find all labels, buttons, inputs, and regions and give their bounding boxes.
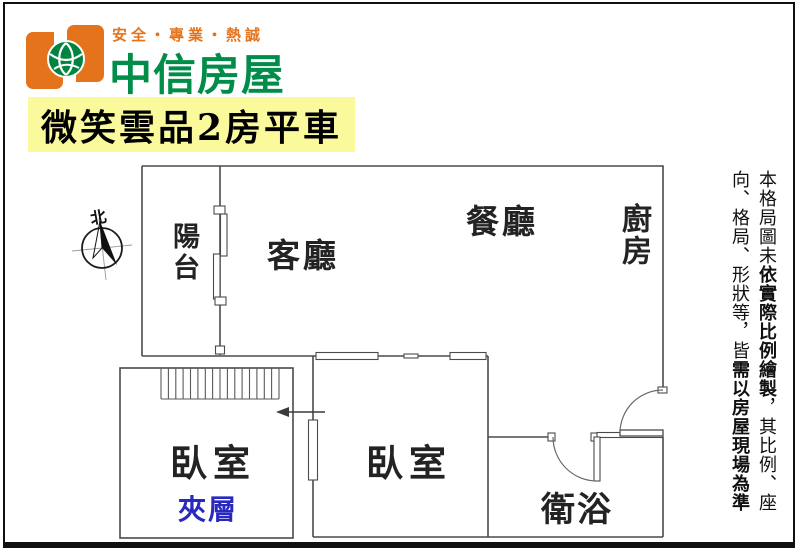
room-label-bedroom-left: 臥室 [170,433,256,487]
room-label-mezzanine: 夾層 [178,488,238,528]
room-label-kitchen: 廚房 [611,203,655,267]
disclaimer-column-2: 向、格局、形狀等，皆需以房屋現場為準 [726,170,753,515]
room-label-living-room: 客廳 [267,229,339,277]
stairs-icon [161,368,279,399]
room-label-balcony: 陽台 [165,222,204,284]
disclaimer-text: 本格局圖未依實際比例繪製，其比例、座 向、格局、形狀等，皆需以房屋現場為準 [718,170,780,515]
room-label-bathroom: 衛浴 [541,482,613,531]
room-label-bedroom-middle: 臥室 [366,433,452,487]
room-label-dining-room: 餐廳 [466,195,538,243]
floor-plan-page: 安全・專業・熱誠 中信房屋 微笑雲品2房平車 [0,0,800,553]
arrow-left-icon [276,407,325,417]
disclaimer-column-1: 本格局圖未依實際比例繪製，其比例、座 [753,170,780,515]
